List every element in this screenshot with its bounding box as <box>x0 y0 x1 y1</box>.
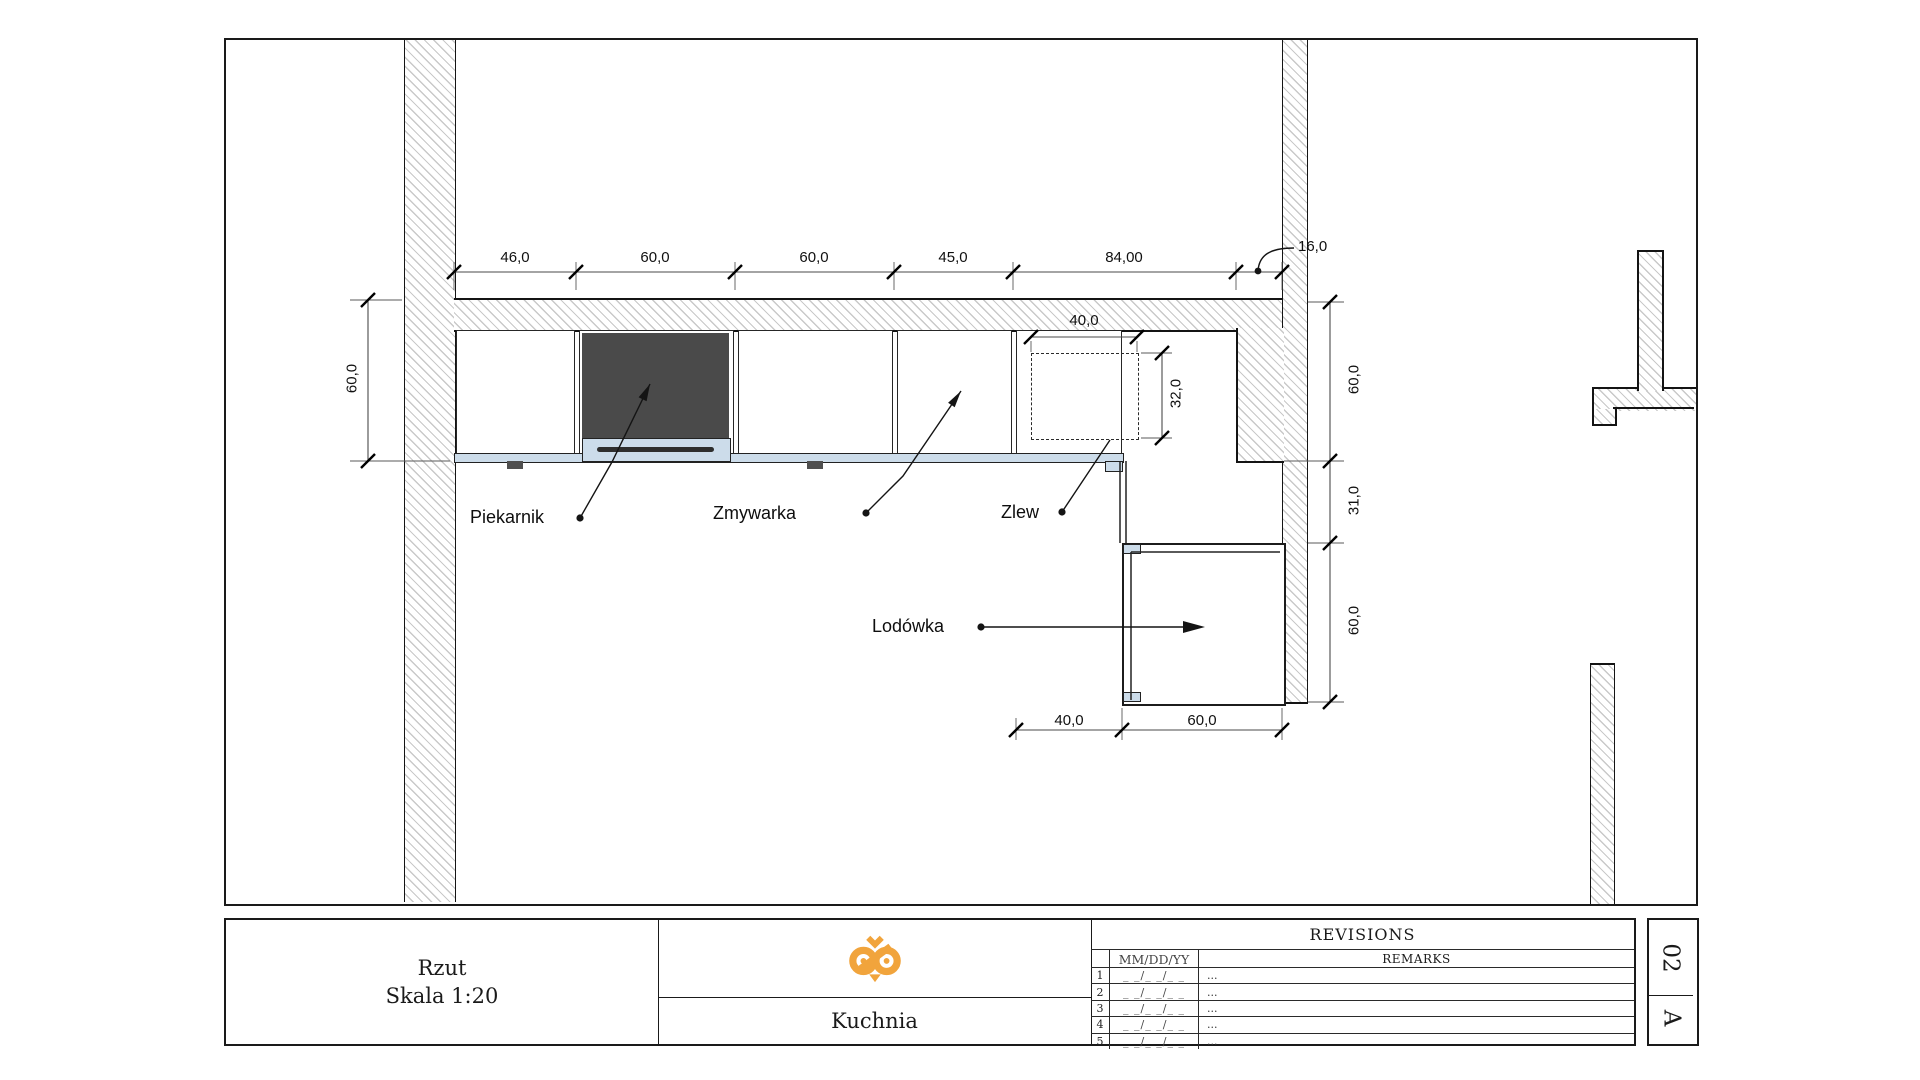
revision-date: _ _/_ _/_ _ <box>1110 984 1199 999</box>
dim-right-3: 60,0 <box>1346 586 1363 656</box>
revision-date: _ _/_ _/_ _ <box>1110 968 1199 983</box>
sheet-number-cell: 02 <box>1649 920 1693 996</box>
revision-remarks: ... <box>1199 1018 1634 1031</box>
revision-number: 5 <box>1091 1034 1110 1049</box>
label-fridge: Lodówka <box>872 616 944 637</box>
revision-remarks: ... <box>1199 1002 1634 1015</box>
dim-bottom-1: 40,0 <box>1034 712 1104 729</box>
revision-number: 2 <box>1091 984 1110 999</box>
dim-sink-depth: 32,0 <box>1168 359 1185 429</box>
dim-top-1: 46,0 <box>480 249 550 266</box>
revision-date: _ _/_ _/_ _ <box>1110 1034 1199 1049</box>
label-sink: Zlew <box>1001 502 1039 523</box>
revision-number: 4 <box>1091 1017 1110 1032</box>
logo-cell <box>658 920 1092 998</box>
kitchen-plan-sheet: 46,0 60,0 60,0 45,0 84,00 16,0 60,0 40,0… <box>0 0 1920 1080</box>
project-name: Kuchnia <box>831 1009 918 1033</box>
dim-sink-width: 40,0 <box>1049 312 1119 329</box>
revision-row: 3 _ _/_ _/_ _ ... <box>1091 1000 1634 1016</box>
drawing-title: Rzut <box>418 954 467 982</box>
revision-row: 4 _ _/_ _/_ _ ... <box>1091 1016 1634 1032</box>
project-name-cell: Kuchnia <box>658 997 1092 1044</box>
dim-top-4: 45,0 <box>918 249 988 266</box>
dim-left-depth: 60,0 <box>344 344 361 414</box>
dim-right-2: 31,0 <box>1346 466 1363 536</box>
dim-bottom-2: 60,0 <box>1167 712 1237 729</box>
revision-remarks: ... <box>1199 1035 1634 1048</box>
sheet-letter: A <box>1658 1009 1684 1026</box>
dim-wall-niche: 16,0 <box>1298 238 1358 255</box>
drawing-scale: Skala 1:20 <box>386 982 499 1010</box>
revision-date: _ _/_ _/_ _ <box>1110 1017 1199 1032</box>
revisions-col-num-header <box>1091 950 1110 968</box>
sheet-number: 02 <box>1658 943 1684 972</box>
revision-date: _ _/_ _/_ _ <box>1110 1001 1199 1016</box>
revision-row: 5 _ _/_ _/_ _ ... <box>1091 1033 1634 1049</box>
title-cell: Rzut Skala 1:20 <box>226 920 659 1044</box>
revisions-table: REVISIONS MM/DD/YY REMARKS 1 _ _/_ _/_ _… <box>1091 920 1634 1044</box>
dim-right-1: 60,0 <box>1346 345 1363 415</box>
revision-row: 1 _ _/_ _/_ _ ... <box>1091 967 1634 983</box>
revisions-col-date-header: MM/DD/YY <box>1110 950 1199 968</box>
revision-row: 2 _ _/_ _/_ _ ... <box>1091 983 1634 999</box>
title-block: Rzut Skala 1:20 Kuchnia REVISIONS MM/DD/… <box>224 918 1636 1046</box>
label-dishwasher: Zmywarka <box>713 503 796 524</box>
dim-top-5: 84,00 <box>1080 249 1168 266</box>
revision-number: 1 <box>1091 968 1110 983</box>
label-oven: Piekarnik <box>470 507 544 528</box>
sheet-index-strip: 02 A <box>1647 918 1699 1046</box>
revision-number: 3 <box>1091 1001 1110 1016</box>
sheet-letter-cell: A <box>1649 995 1693 1040</box>
dim-top-3: 60,0 <box>779 249 849 266</box>
dim-top-2: 60,0 <box>620 249 690 266</box>
revisions-col-remarks-header: REMARKS <box>1199 950 1634 968</box>
owl-logo-icon <box>844 932 906 986</box>
revision-remarks: ... <box>1199 986 1634 999</box>
revision-remarks: ... <box>1199 969 1634 982</box>
revisions-header: REVISIONS <box>1091 920 1634 949</box>
